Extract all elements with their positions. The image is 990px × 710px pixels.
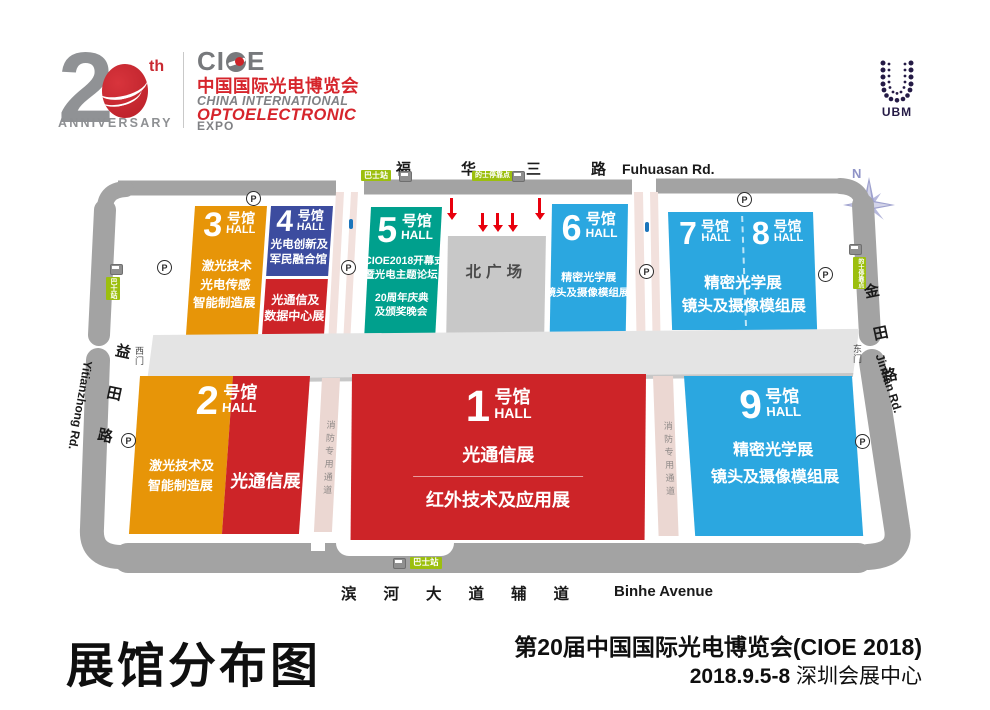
hall-6-number: 6 — [561, 212, 582, 244]
parking-icon: P — [341, 260, 356, 275]
parking-icon: P — [737, 192, 752, 207]
hall-5-suffix: 号馆 — [401, 214, 434, 229]
bus-icon — [399, 171, 412, 182]
north-square-label: 北广场 — [447, 260, 545, 282]
hall-2-number: 2 — [195, 384, 220, 419]
hall-1-hall: HALL — [494, 406, 531, 420]
hall-5: 5 号馆HALL CIOE2018开幕式 暨光电主题论坛 20周年庆典 及颁奖晚… — [364, 207, 442, 335]
hall-6-hall: HALL — [585, 227, 617, 239]
hall-5-number: 5 — [376, 214, 398, 246]
taxi-stop-badge-right: 的士停靠点 — [853, 257, 866, 289]
hall-3-suffix: 号馆 — [226, 211, 256, 225]
hall-1-suffix: 号馆 — [494, 388, 531, 406]
hall-2-hall: HALL — [222, 401, 258, 414]
event-title: 第20届中国国际光电博览会(CIOE 2018) — [514, 628, 922, 662]
hall-4-upper-caption: 光电创新及 军民融合馆 — [267, 238, 331, 268]
hall-7-suffix: 号馆 — [701, 219, 731, 233]
parking-icon: P — [246, 191, 261, 206]
entrance-arrow-icon — [496, 213, 499, 226]
hall-8-suffix: 号馆 — [773, 219, 803, 233]
hall-8-number: 8 — [751, 219, 770, 247]
hall-6-suffix: 号馆 — [586, 212, 618, 227]
east-gate-label: 东门 — [851, 344, 864, 364]
hall-2-red-caption: 光通信展 — [228, 468, 304, 493]
hall-9-suffix: 号馆 — [765, 388, 801, 405]
hall-9: 9 号馆HALL 精密光学展 镜头及摄像模组展 — [684, 376, 863, 536]
hall-2-orange-caption: 激光技术及 智能制造展 — [134, 456, 229, 495]
hall-1-caption-1: 光通信展 — [351, 441, 645, 467]
west-gate-label: 西门 — [133, 346, 146, 366]
road-label-fuhuasan-cn: 福华三路 — [396, 158, 656, 179]
hall-4-hall: HALL — [296, 222, 325, 233]
hall-7-8: 7 号馆HALL 8 号馆HALL 精密光学展 镜头及摄像模组展 — [668, 212, 817, 330]
hall-3-caption: 激光技术 光电传感 智能制造展 — [188, 257, 264, 313]
hall-1-header: 1 号馆HALL — [352, 374, 646, 427]
bus-icon — [110, 264, 123, 275]
hall-6-caption: 精密光学展 镜头及摄像模组展 — [550, 270, 627, 302]
info-marker-icon: i — [645, 222, 649, 232]
taxi-icon — [849, 244, 862, 255]
entrance-arrow-icon — [450, 198, 453, 214]
hall-9-header: 9 号馆HALL — [684, 376, 855, 423]
parking-icon: P — [818, 267, 833, 282]
hall-7-8-caption: 精密光学展 镜头及摄像模组展 — [670, 272, 817, 319]
hall-8-hall: HALL — [774, 233, 804, 244]
bus-stop-badge-left: 巴士站 — [106, 277, 120, 300]
road-label-fuhuasan-en: Fuhuasan Rd. — [622, 161, 715, 177]
hall-4-number: 4 — [276, 209, 295, 235]
hall-4-upper-section: 4 号馆HALL 光电创新及 军民融合馆 — [266, 206, 333, 276]
hall-4-lower-section: 光通信及 数据中心展 — [262, 279, 328, 338]
hall-6: 6 号馆HALL 精密光学展 镜头及摄像模组展 — [550, 204, 628, 332]
hall-3-header: 3 号馆HALL — [193, 206, 267, 241]
hall-4-lower-caption: 光通信及 数据中心展 — [263, 279, 328, 324]
hall-6-header: 6 号馆HALL — [551, 204, 628, 244]
parking-icon: P — [855, 434, 870, 449]
entrance-arrow-icon — [511, 213, 514, 226]
hall-9-number: 9 — [738, 388, 763, 423]
info-marker-icon: i — [349, 219, 353, 229]
map-title: 展馆分布图 — [66, 626, 321, 696]
hall-5-hall: HALL — [401, 229, 434, 241]
hall-7-header: 7 号馆HALL — [679, 219, 731, 247]
hall-4: 4 号馆HALL 光电创新及 军民融合馆 光通信及 数据中心展 — [262, 206, 333, 338]
hall-1-caption-2: 红外技术及应用展 — [351, 486, 645, 512]
taxi-icon — [512, 171, 525, 182]
north-square: 北广场 — [446, 236, 546, 344]
entrance-arrow-icon — [481, 213, 484, 226]
hall-5-header: 5 号馆HALL — [369, 207, 442, 246]
hall-9-hall: HALL — [766, 405, 802, 418]
bottom-road-notch — [311, 540, 325, 551]
hall-3: 3 号馆HALL 激光技术 光电传感 智能制造展 — [186, 206, 267, 338]
hall-2: 2 号馆HALL 激光技术及 智能制造展 光通信展 — [129, 376, 310, 534]
hall-1-number: 1 — [466, 388, 491, 427]
parking-icon: P — [157, 260, 172, 275]
hall-4-header: 4 号馆HALL — [269, 206, 333, 235]
hall-9-caption: 精密光学展 镜头及摄像模组展 — [688, 437, 860, 491]
bus-icon — [393, 558, 406, 569]
bottom-road-bus-bay — [336, 543, 454, 556]
hall-1-divider — [413, 476, 583, 477]
hall-1: 1 号馆HALL 光通信展 红外技术及应用展 — [351, 374, 646, 540]
hall-5-caption-2: 20周年庆典 及颁奖晚会 — [365, 291, 437, 319]
bus-stop-badge-top: 巴士站 — [361, 170, 391, 181]
hall-5-caption-1: CIOE2018开幕式 暨光电主题论坛 — [367, 254, 439, 282]
taxi-stop-badge-top: 的士停靠点 — [472, 171, 513, 181]
parking-icon: P — [639, 264, 654, 279]
hall-7-number: 7 — [679, 219, 698, 247]
bus-stop-badge-bottom: 巴士站 — [410, 557, 442, 569]
exhibition-map-page: 2 th ANNIVERSARY CIE 中国国际光电博览会 CHINA INT… — [0, 0, 990, 710]
hall-2-suffix: 号馆 — [222, 384, 258, 401]
event-date: 2018.9.5-8 — [690, 665, 790, 688]
road-label-binhe-cn: 滨河大道辅道 — [341, 582, 596, 604]
entrance-arrow-icon — [538, 198, 541, 214]
event-venue: 深圳会展中心 — [796, 665, 922, 688]
hall-7-hall: HALL — [701, 233, 731, 244]
parking-icon: P — [121, 433, 136, 448]
hall-3-hall: HALL — [226, 225, 256, 236]
event-date-venue: 2018.9.5-8 深圳会展中心 — [690, 660, 922, 690]
road-label-binhe-en: Binhe Avenue — [614, 583, 713, 600]
hall-8-header: 8 号馆HALL — [751, 219, 803, 247]
hall-3-number: 3 — [202, 211, 223, 241]
hall-4-suffix: 号馆 — [297, 209, 326, 222]
hall-2-header: 2 号馆HALL — [195, 384, 258, 419]
